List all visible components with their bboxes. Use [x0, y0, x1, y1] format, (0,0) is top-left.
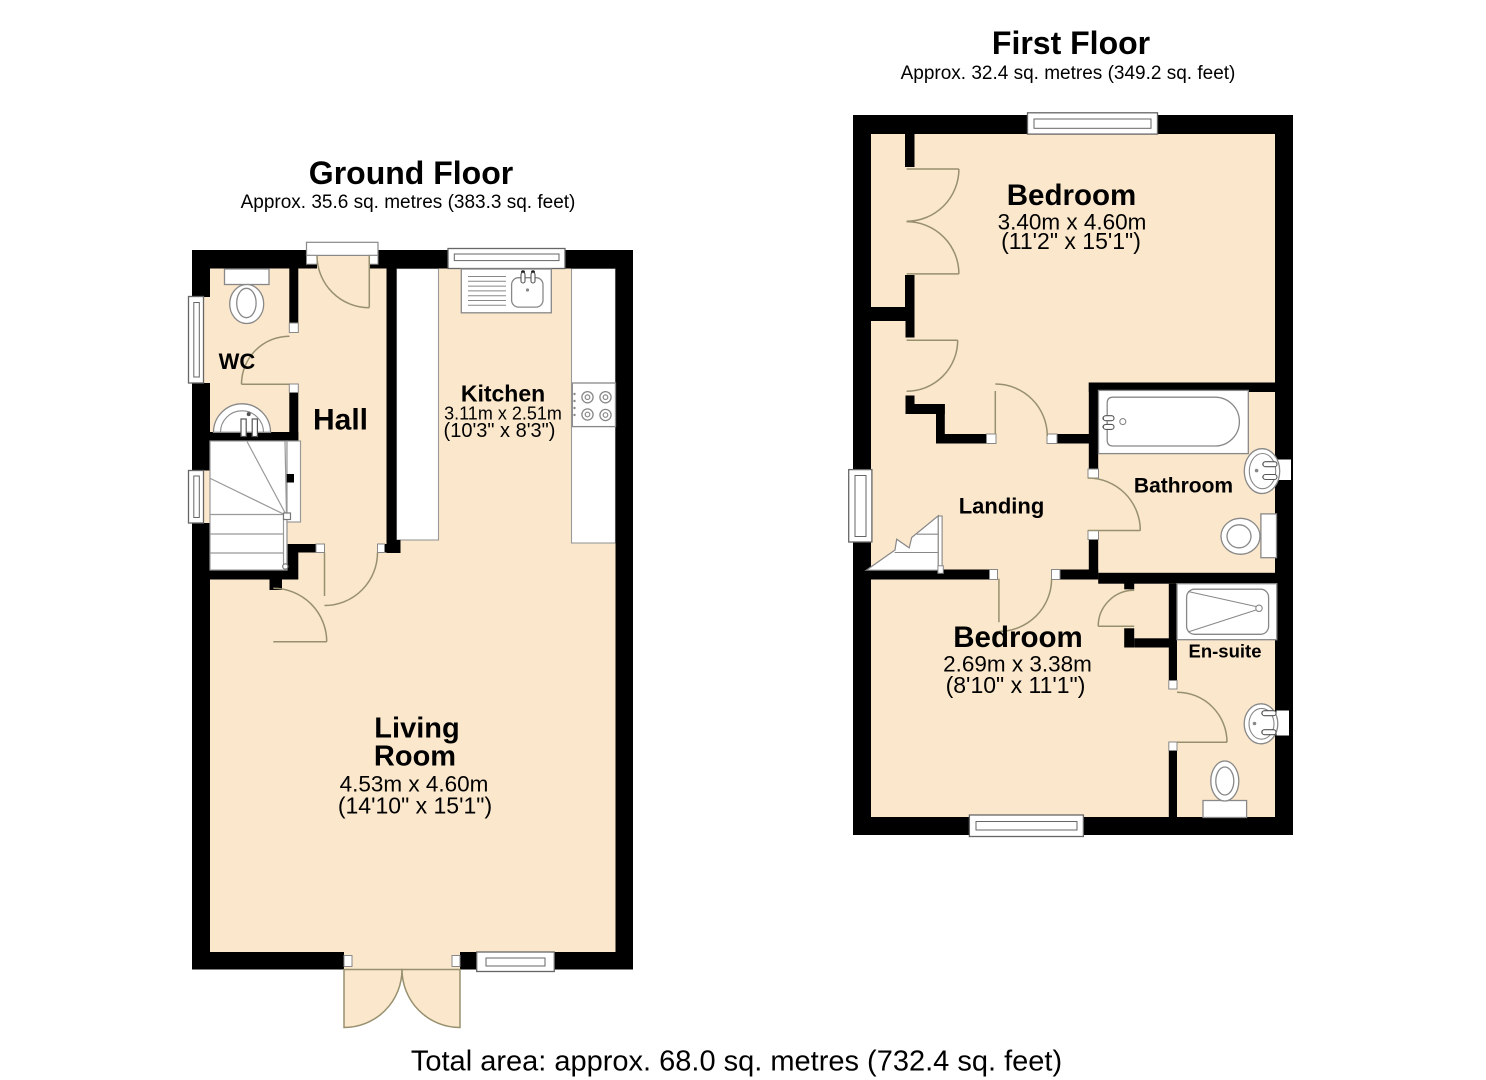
svg-text:Total area: approx. 68.0 sq. m: Total area: approx. 68.0 sq. metres (732…: [411, 1046, 1062, 1078]
svg-text:En-suite: En-suite: [1189, 641, 1262, 662]
svg-text:WC: WC: [219, 349, 256, 374]
svg-text:(8'10" x 11'1"): (8'10" x 11'1"): [946, 672, 1086, 698]
svg-text:Room: Room: [374, 741, 456, 773]
svg-text:Approx. 35.6 sq. metres (383.3: Approx. 35.6 sq. metres (383.3 sq. feet): [241, 192, 576, 213]
svg-text:Approx. 32.4 sq. metres (349.2: Approx. 32.4 sq. metres (349.2 sq. feet): [901, 63, 1236, 84]
svg-text:Landing: Landing: [959, 494, 1045, 519]
svg-text:Ground Floor: Ground Floor: [309, 155, 513, 191]
svg-text:Bedroom: Bedroom: [953, 621, 1082, 654]
svg-text:First Floor: First Floor: [992, 25, 1150, 61]
svg-text:(10'3" x 8'3"): (10'3" x 8'3"): [444, 420, 556, 442]
svg-text:Bathroom: Bathroom: [1134, 475, 1233, 498]
svg-text:Bedroom: Bedroom: [1007, 179, 1136, 212]
svg-text:(14'10" x 15'1"): (14'10" x 15'1"): [338, 793, 492, 819]
svg-text:Hall: Hall: [313, 404, 368, 437]
svg-text:(11'2" x 15'1"): (11'2" x 15'1"): [1001, 228, 1141, 254]
